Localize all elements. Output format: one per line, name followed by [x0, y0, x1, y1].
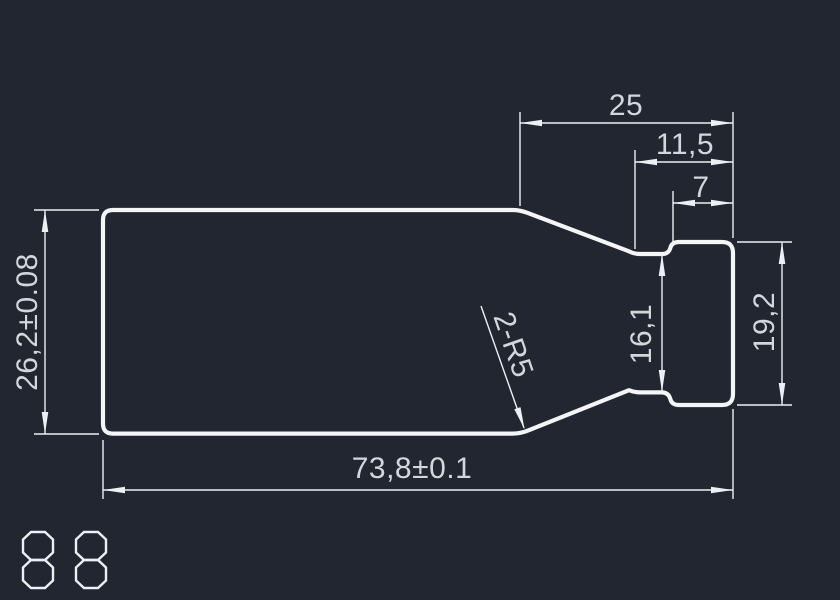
dimension-width-7: 7	[673, 171, 733, 244]
arrowhead-left	[520, 120, 542, 127]
dimension-length-73-8: 73,8±0.1	[103, 409, 733, 499]
arrowhead-bottom	[659, 370, 666, 392]
dimension-text: 26,2±0.08	[11, 253, 44, 391]
arrowhead-right	[711, 159, 733, 166]
leader-radius-2-r5: 2-R5	[481, 306, 539, 429]
arrowhead-top	[659, 254, 666, 276]
dimension-text: 73,8±0.1	[352, 452, 473, 485]
arrowhead-right	[711, 120, 733, 127]
dimension-text: 11,5	[656, 128, 714, 161]
dimension-width-11-5: 11,5	[635, 128, 733, 249]
dimension-text: 7	[692, 171, 709, 204]
arrowhead-top	[42, 210, 49, 232]
dimension-width-25: 25	[520, 89, 733, 238]
stamp-octagon	[23, 560, 53, 588]
arrowhead-left	[103, 487, 125, 494]
arrowhead-bottom	[42, 412, 49, 434]
stamp-88	[23, 532, 106, 588]
dimension-text: 19,2	[748, 292, 781, 352]
arrowhead-leader	[514, 407, 524, 429]
dimension-text: 16,1	[625, 304, 658, 364]
arrowhead-left	[635, 159, 657, 166]
dimension-height-26-2: 26,2±0.08	[11, 210, 99, 434]
arrowhead-right	[711, 487, 733, 494]
dimension-height-16-1: 16,1	[625, 254, 665, 392]
stamp-octagon	[23, 532, 53, 560]
arrowhead-top	[779, 242, 786, 264]
stamp-octagon	[76, 532, 106, 560]
dimension-height-19-2: 19,2	[737, 242, 792, 405]
dimension-text: 25	[609, 89, 643, 122]
arrowhead-bottom	[779, 383, 786, 405]
arrowhead-right	[711, 200, 733, 207]
cad-drawing: 73,8±0.1 26,2±0.08 25 11,5 7	[0, 0, 840, 600]
stamp-octagon	[76, 560, 106, 588]
cad-drawing-canvas[interactable]: 73,8±0.1 26,2±0.08 25 11,5 7	[0, 0, 840, 600]
